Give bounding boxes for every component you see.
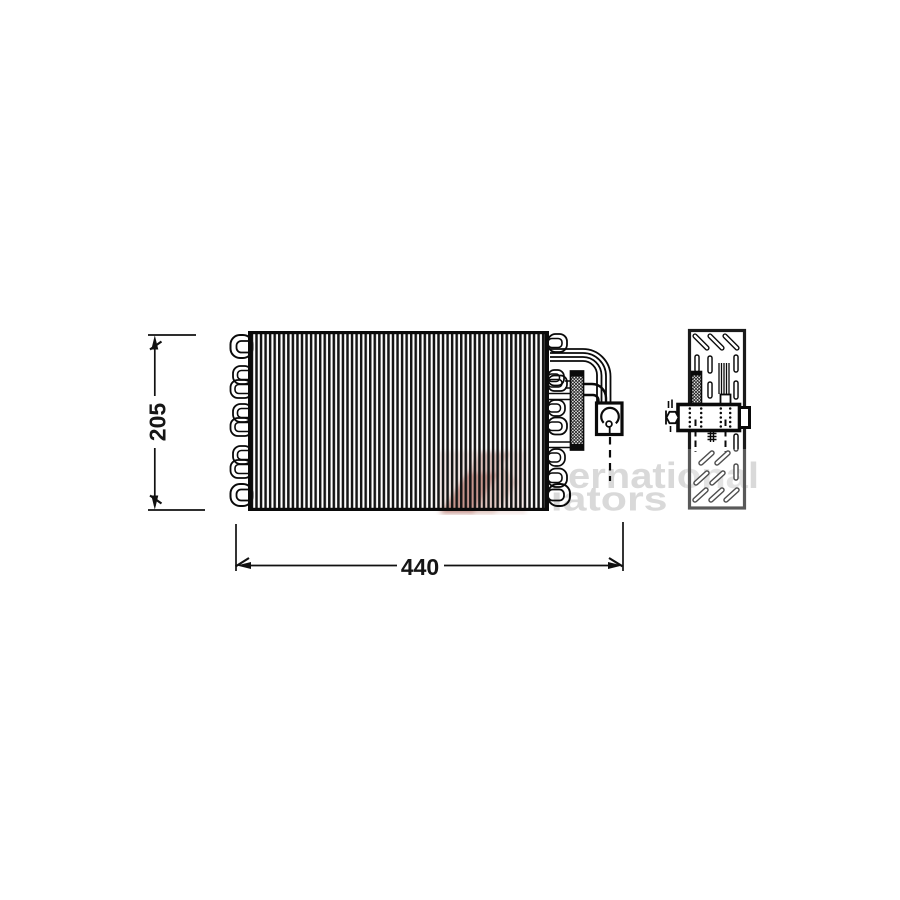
svg-text:440: 440 — [401, 554, 439, 580]
svg-text:205: 205 — [145, 403, 171, 442]
